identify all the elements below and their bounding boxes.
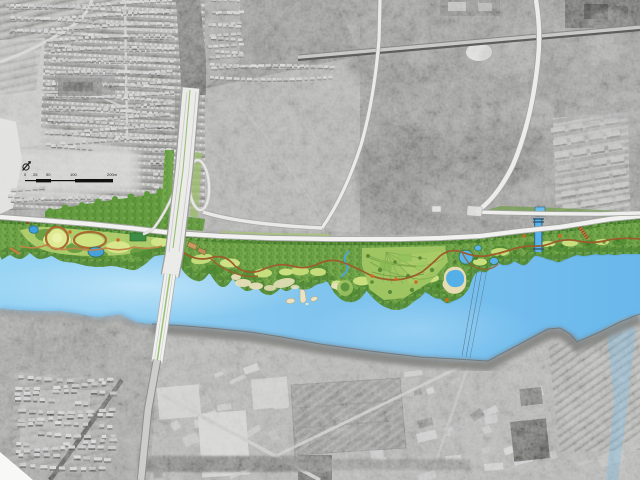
svg-text:100: 100: [70, 172, 77, 177]
svg-text:50: 50: [46, 172, 51, 177]
svg-text:200m: 200m: [107, 172, 118, 177]
svg-text:25: 25: [33, 172, 38, 177]
